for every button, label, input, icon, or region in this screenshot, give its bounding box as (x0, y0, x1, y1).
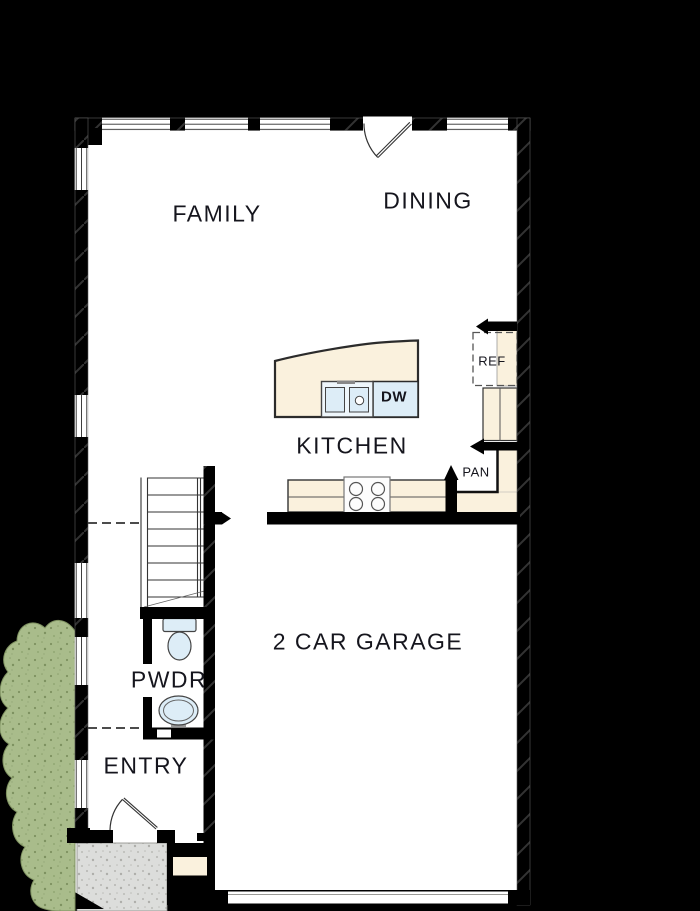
wall-kitchen-stub (204, 512, 223, 525)
floor-plan-page: FAMILY DINING KITCHEN 2 CAR GARAGE PWDR … (0, 0, 700, 911)
stove (344, 477, 390, 515)
right-counter (483, 388, 517, 441)
room-label-entry: ENTRY (103, 753, 188, 780)
faucet (337, 381, 355, 385)
exterior-wall-left (75, 118, 88, 843)
fixture-label-dw: DW (381, 389, 407, 406)
wall-powder-left-upper (143, 619, 152, 664)
wall-stairs-powder (140, 607, 215, 619)
room-label-family: FAMILY (172, 201, 261, 228)
fixture-label-pan: PAN (462, 465, 489, 480)
garage-door (228, 892, 508, 904)
wall-powder-bottom (143, 728, 215, 740)
room-label-dining: DINING (383, 188, 473, 215)
wall-kitchen-garage (267, 512, 520, 525)
front-porch (73, 843, 167, 911)
fixture-label-ref: REF (478, 354, 506, 369)
wall-entry-left (77, 830, 113, 843)
windows-top (102, 118, 508, 131)
dining-door-opening (363, 117, 412, 133)
room-label-powder: PWDR (131, 667, 207, 694)
kitchen-counter (288, 477, 447, 515)
wall-powder-left-lower (143, 697, 152, 730)
wall-entry-right (157, 830, 175, 843)
room-label-garage: 2 CAR GARAGE (273, 629, 464, 656)
room-label-kitchen: KITCHEN (296, 433, 407, 460)
exterior-wall-right (517, 118, 530, 905)
island-sink (322, 381, 374, 418)
